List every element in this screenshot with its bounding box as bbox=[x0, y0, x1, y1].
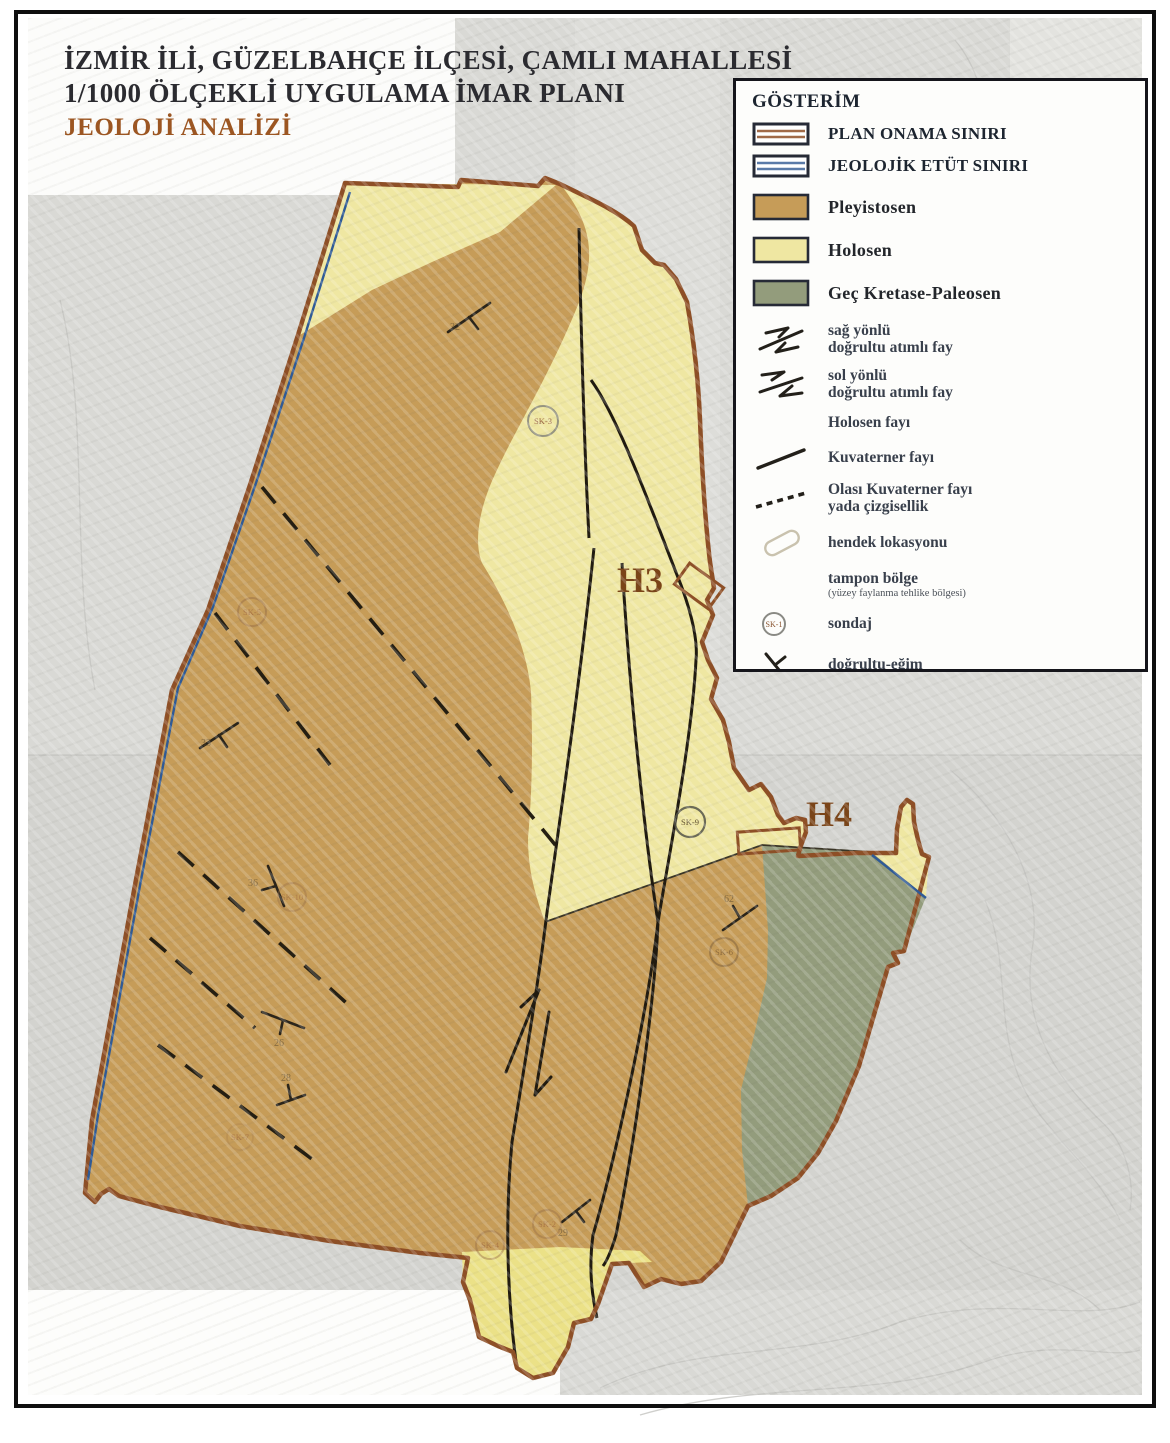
svg-text:36: 36 bbox=[248, 878, 258, 889]
label-h3: H3 bbox=[617, 560, 663, 600]
map-title-line2: 1/1000 ÖLÇEKLİ UYGULAMA İMAR PLANI bbox=[64, 77, 792, 110]
svg-text:SK-2: SK-2 bbox=[538, 1219, 556, 1229]
svg-text:33: 33 bbox=[201, 738, 211, 749]
pleyistosen-swatch-icon bbox=[752, 192, 828, 222]
map-subtitle-analysis: JEOLOJİ ANALİZİ bbox=[64, 113, 792, 144]
scanned-geology-map-page: 32 33 36 26 28 62 29 SK-3 SK-5 SK-10 SK-… bbox=[0, 0, 1170, 1443]
svg-text:32: 32 bbox=[450, 322, 460, 333]
plan-onama-swatch-icon bbox=[752, 121, 828, 147]
legend-row-dogrultu-egim: doğrultu-eğim bbox=[752, 648, 1135, 672]
dashed-fault-line-icon bbox=[752, 483, 828, 513]
svg-text:SK-7: SK-7 bbox=[231, 1132, 249, 1142]
gec-kretase-swatch-icon bbox=[752, 278, 828, 308]
legend-row-holosen-fayi: Holosen fayı bbox=[752, 411, 1135, 435]
legend-row-hendek: hendek lokasyonu bbox=[752, 525, 1135, 561]
holosen-fayi-blank-swatch bbox=[752, 411, 828, 435]
title-block: İZMİR İLİ, GÜZELBAHÇE İLÇESİ, ÇAMLI MAHA… bbox=[64, 44, 792, 143]
svg-text:SK-4: SK-4 bbox=[481, 1240, 500, 1250]
legend-row-olasi-kuvaterner: Olası Kuvaterner fayıyada çizgisellik bbox=[752, 481, 1135, 516]
svg-text:28: 28 bbox=[281, 1073, 291, 1084]
trench-outline-icon bbox=[752, 525, 828, 561]
legend-row-sondaj: SK-1 sondaj bbox=[752, 609, 1135, 639]
legend-row-holosen: Holosen bbox=[752, 235, 1135, 265]
tampon-blank-swatch bbox=[752, 570, 828, 600]
legend-row-kuvaterner: Kuvaterner fayı bbox=[752, 444, 1135, 472]
holosen-swatch-icon bbox=[752, 235, 828, 265]
map-title-line1: İZMİR İLİ, GÜZELBAHÇE İLÇESİ, ÇAMLI MAHA… bbox=[64, 44, 792, 77]
svg-text:26: 26 bbox=[274, 1038, 284, 1049]
legend-row-gec-kretase: Geç Kretase-Paleosen bbox=[752, 278, 1135, 308]
legend-row-plan-onama: PLAN ONAMA SINIRI bbox=[752, 121, 1135, 147]
kuvaterner-fault-line-icon bbox=[752, 444, 828, 472]
right-lateral-fault-icon bbox=[752, 321, 828, 357]
legend-row-sag-yonlu: sağ yönlüdoğrultu atımlı fay bbox=[752, 321, 1135, 357]
legend-panel: GÖSTERİM PLAN ONAMA SINIRI JEOLOJİK ETÜT… bbox=[733, 78, 1148, 672]
svg-text:SK-3: SK-3 bbox=[534, 416, 552, 426]
legend-row-jeolojik-etut: JEOLOJİK ETÜT SINIRI bbox=[752, 153, 1135, 179]
svg-text:SK-1: SK-1 bbox=[766, 620, 783, 629]
svg-text:62: 62 bbox=[724, 894, 734, 905]
legend-row-pleyistosen: Pleyistosen bbox=[752, 192, 1135, 222]
svg-text:SK-6: SK-6 bbox=[715, 947, 733, 957]
svg-text:SK-10: SK-10 bbox=[281, 892, 303, 902]
jeolojik-etut-swatch-icon bbox=[752, 153, 828, 179]
borehole-circle-icon: SK-1 bbox=[752, 609, 828, 639]
label-h4: H4 bbox=[806, 794, 852, 834]
left-lateral-fault-icon bbox=[752, 366, 828, 402]
svg-text:SK-5: SK-5 bbox=[243, 607, 261, 617]
svg-text:SK-9: SK-9 bbox=[681, 817, 699, 827]
legend-row-sol-yonlu: sol yönlüdoğrultu atımlı fay bbox=[752, 366, 1135, 402]
legend-row-tampon: tampon bölge (yüzey faylanma tehlike böl… bbox=[752, 570, 1135, 600]
legend-title: GÖSTERİM bbox=[752, 91, 1135, 113]
strike-dip-icon bbox=[752, 648, 828, 672]
